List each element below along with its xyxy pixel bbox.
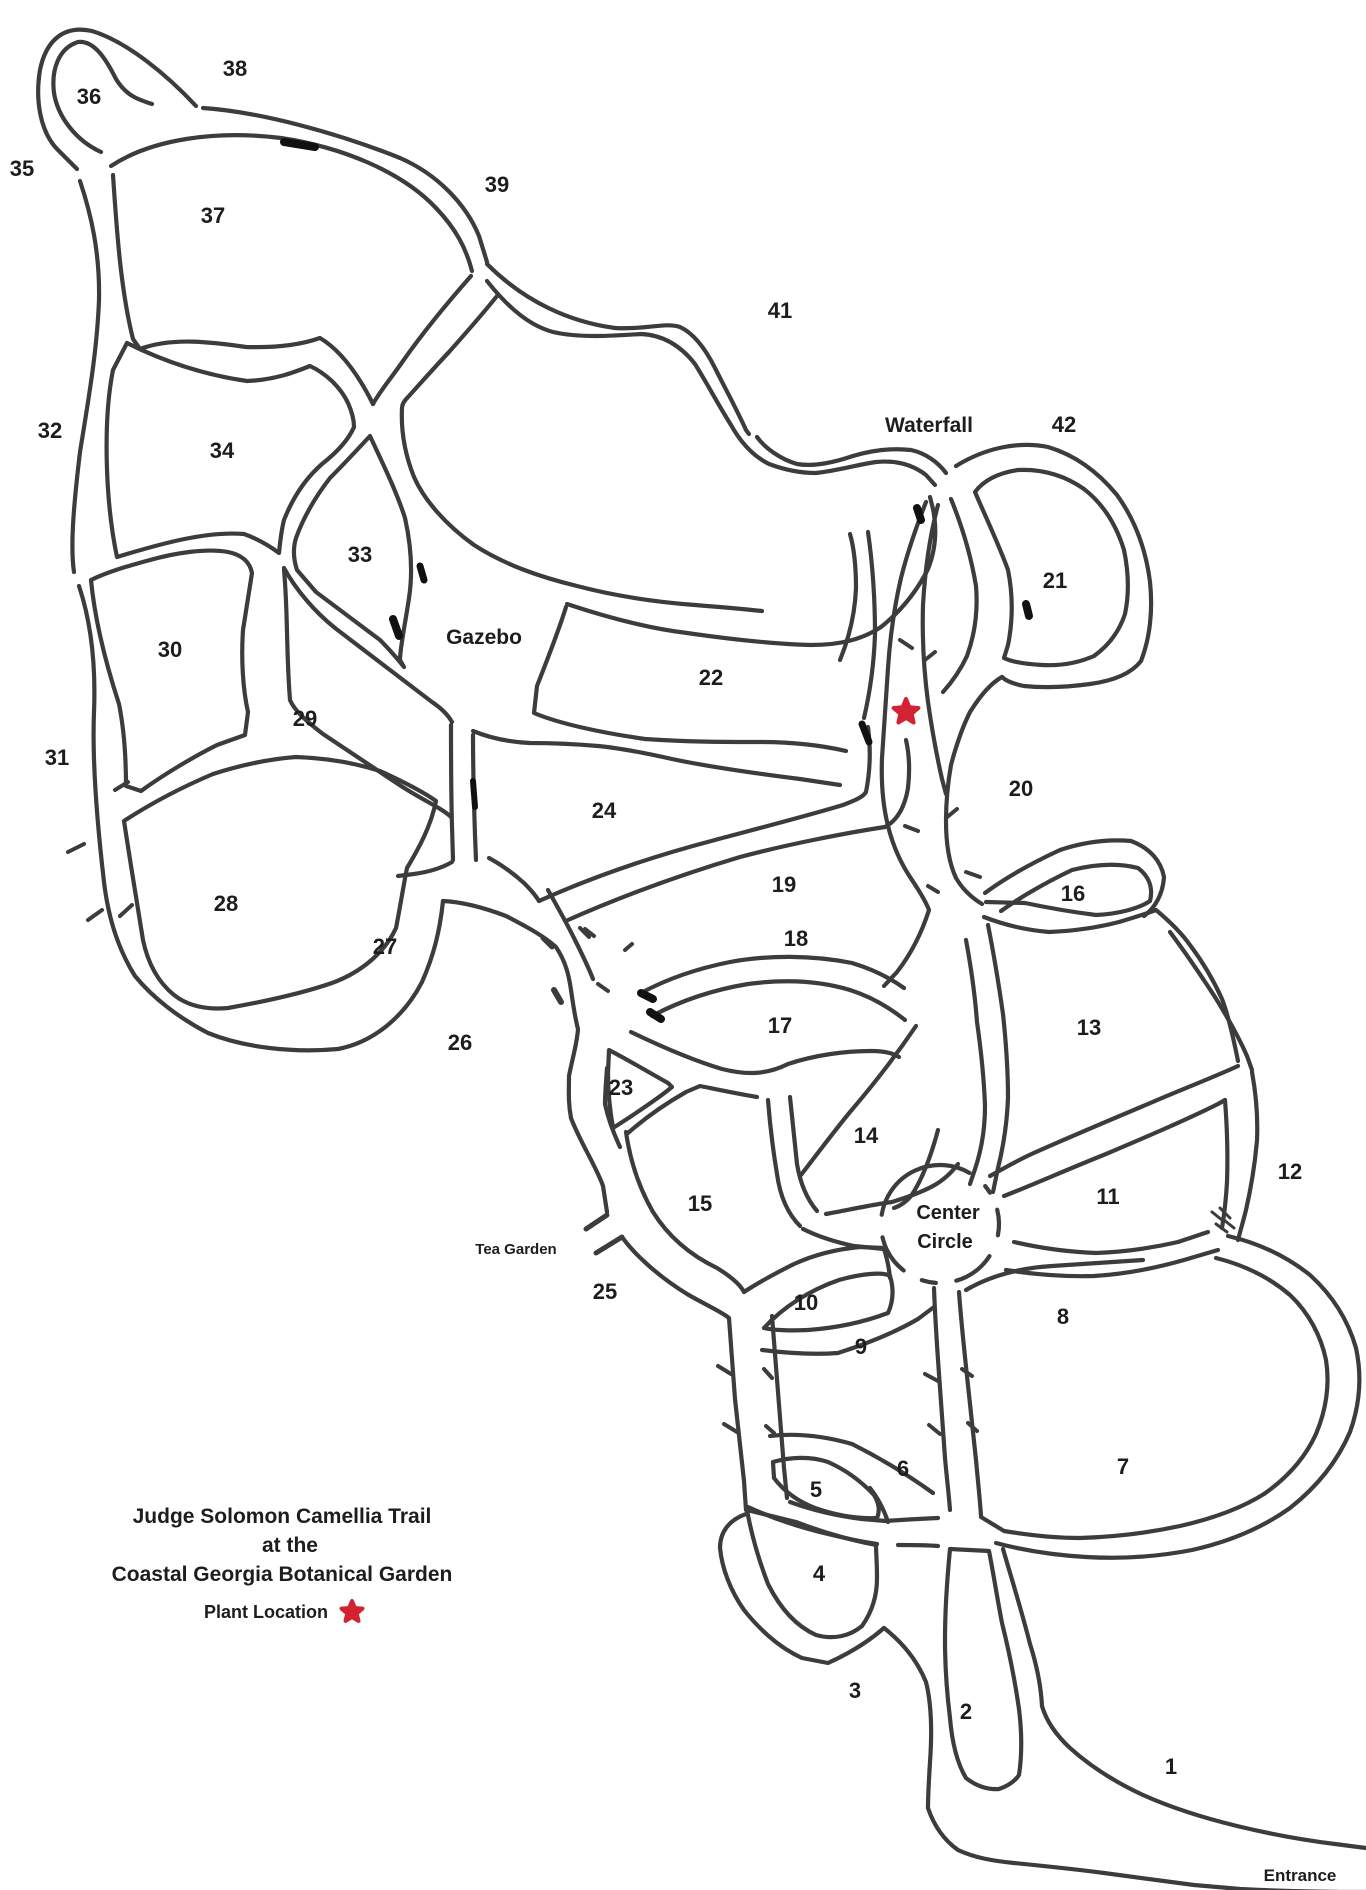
svg-text:41: 41 bbox=[768, 298, 792, 323]
svg-text:at the: at the bbox=[262, 1534, 318, 1557]
svg-text:16: 16 bbox=[1061, 881, 1085, 906]
svg-text:Center: Center bbox=[916, 1202, 980, 1224]
svg-text:2: 2 bbox=[960, 1699, 972, 1724]
svg-text:Gazebo: Gazebo bbox=[446, 626, 522, 649]
svg-text:Entrance: Entrance bbox=[1264, 1866, 1337, 1885]
svg-text:19: 19 bbox=[772, 872, 796, 897]
svg-text:36: 36 bbox=[77, 84, 101, 109]
svg-text:Coastal Georgia Botanical Gard: Coastal Georgia Botanical Garden bbox=[112, 1563, 453, 1586]
svg-text:7: 7 bbox=[1117, 1454, 1129, 1479]
svg-text:34: 34 bbox=[210, 438, 235, 463]
svg-text:14: 14 bbox=[854, 1123, 879, 1148]
svg-text:24: 24 bbox=[592, 798, 617, 823]
svg-text:Judge Solomon Camellia Trail: Judge Solomon Camellia Trail bbox=[133, 1505, 432, 1528]
svg-text:Tea Garden: Tea Garden bbox=[475, 1241, 556, 1258]
svg-text:Circle: Circle bbox=[917, 1231, 973, 1253]
svg-text:12: 12 bbox=[1278, 1159, 1302, 1184]
svg-text:28: 28 bbox=[214, 891, 238, 916]
svg-text:30: 30 bbox=[158, 637, 182, 662]
svg-text:1: 1 bbox=[1165, 1754, 1177, 1779]
svg-text:13: 13 bbox=[1077, 1015, 1101, 1040]
svg-text:17: 17 bbox=[768, 1013, 792, 1038]
svg-text:11: 11 bbox=[1096, 1184, 1119, 1209]
svg-text:32: 32 bbox=[38, 418, 62, 443]
svg-text:Plant Location: Plant Location bbox=[204, 1602, 328, 1622]
svg-text:25: 25 bbox=[593, 1279, 617, 1304]
svg-text:33: 33 bbox=[348, 542, 372, 567]
svg-text:21: 21 bbox=[1043, 568, 1067, 593]
svg-text:20: 20 bbox=[1009, 776, 1033, 801]
svg-text:4: 4 bbox=[813, 1561, 826, 1586]
svg-text:39: 39 bbox=[485, 172, 509, 197]
svg-text:15: 15 bbox=[688, 1191, 712, 1216]
svg-text:8: 8 bbox=[1057, 1304, 1069, 1329]
svg-text:35: 35 bbox=[10, 156, 34, 181]
svg-text:Waterfall: Waterfall bbox=[885, 414, 973, 437]
svg-text:5: 5 bbox=[810, 1477, 822, 1502]
svg-text:31: 31 bbox=[45, 745, 69, 770]
svg-text:42: 42 bbox=[1052, 412, 1076, 437]
svg-text:38: 38 bbox=[223, 56, 247, 81]
svg-text:27: 27 bbox=[373, 934, 397, 959]
svg-text:37: 37 bbox=[201, 203, 225, 228]
svg-text:18: 18 bbox=[784, 926, 808, 951]
svg-text:3: 3 bbox=[849, 1678, 861, 1703]
svg-text:22: 22 bbox=[699, 665, 723, 690]
svg-text:23: 23 bbox=[609, 1075, 633, 1100]
svg-text:6: 6 bbox=[897, 1456, 909, 1481]
svg-text:26: 26 bbox=[448, 1030, 472, 1055]
svg-text:9: 9 bbox=[855, 1334, 867, 1359]
svg-text:29: 29 bbox=[293, 706, 317, 731]
svg-text:10: 10 bbox=[794, 1290, 818, 1315]
